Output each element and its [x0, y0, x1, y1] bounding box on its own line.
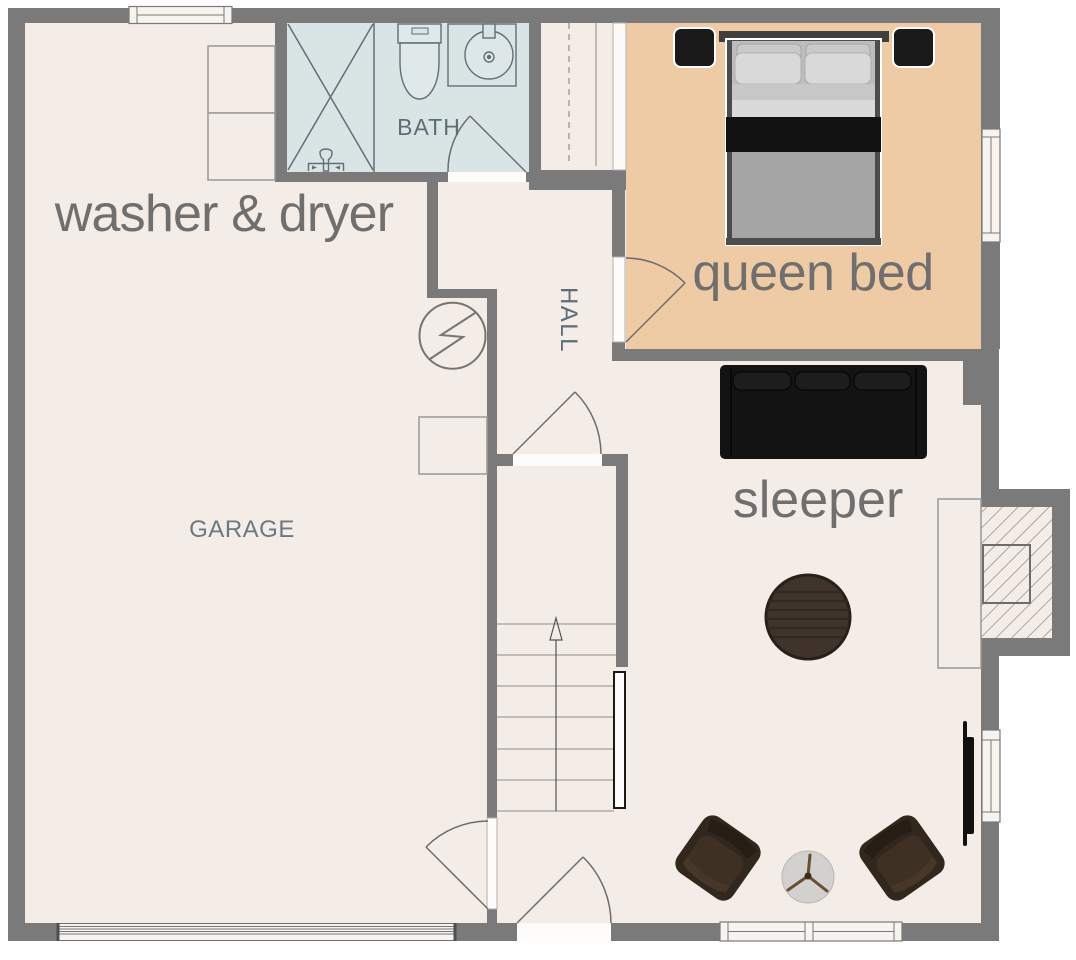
svg-text:washer & dryer: washer & dryer: [54, 185, 394, 243]
svg-text:sleeper: sleeper: [733, 471, 904, 529]
svg-text:BATH: BATH: [397, 114, 461, 140]
svg-text:GARAGE: GARAGE: [189, 516, 295, 543]
svg-text:queen bed: queen bed: [692, 244, 933, 302]
svg-text:HALL: HALL: [555, 287, 582, 353]
